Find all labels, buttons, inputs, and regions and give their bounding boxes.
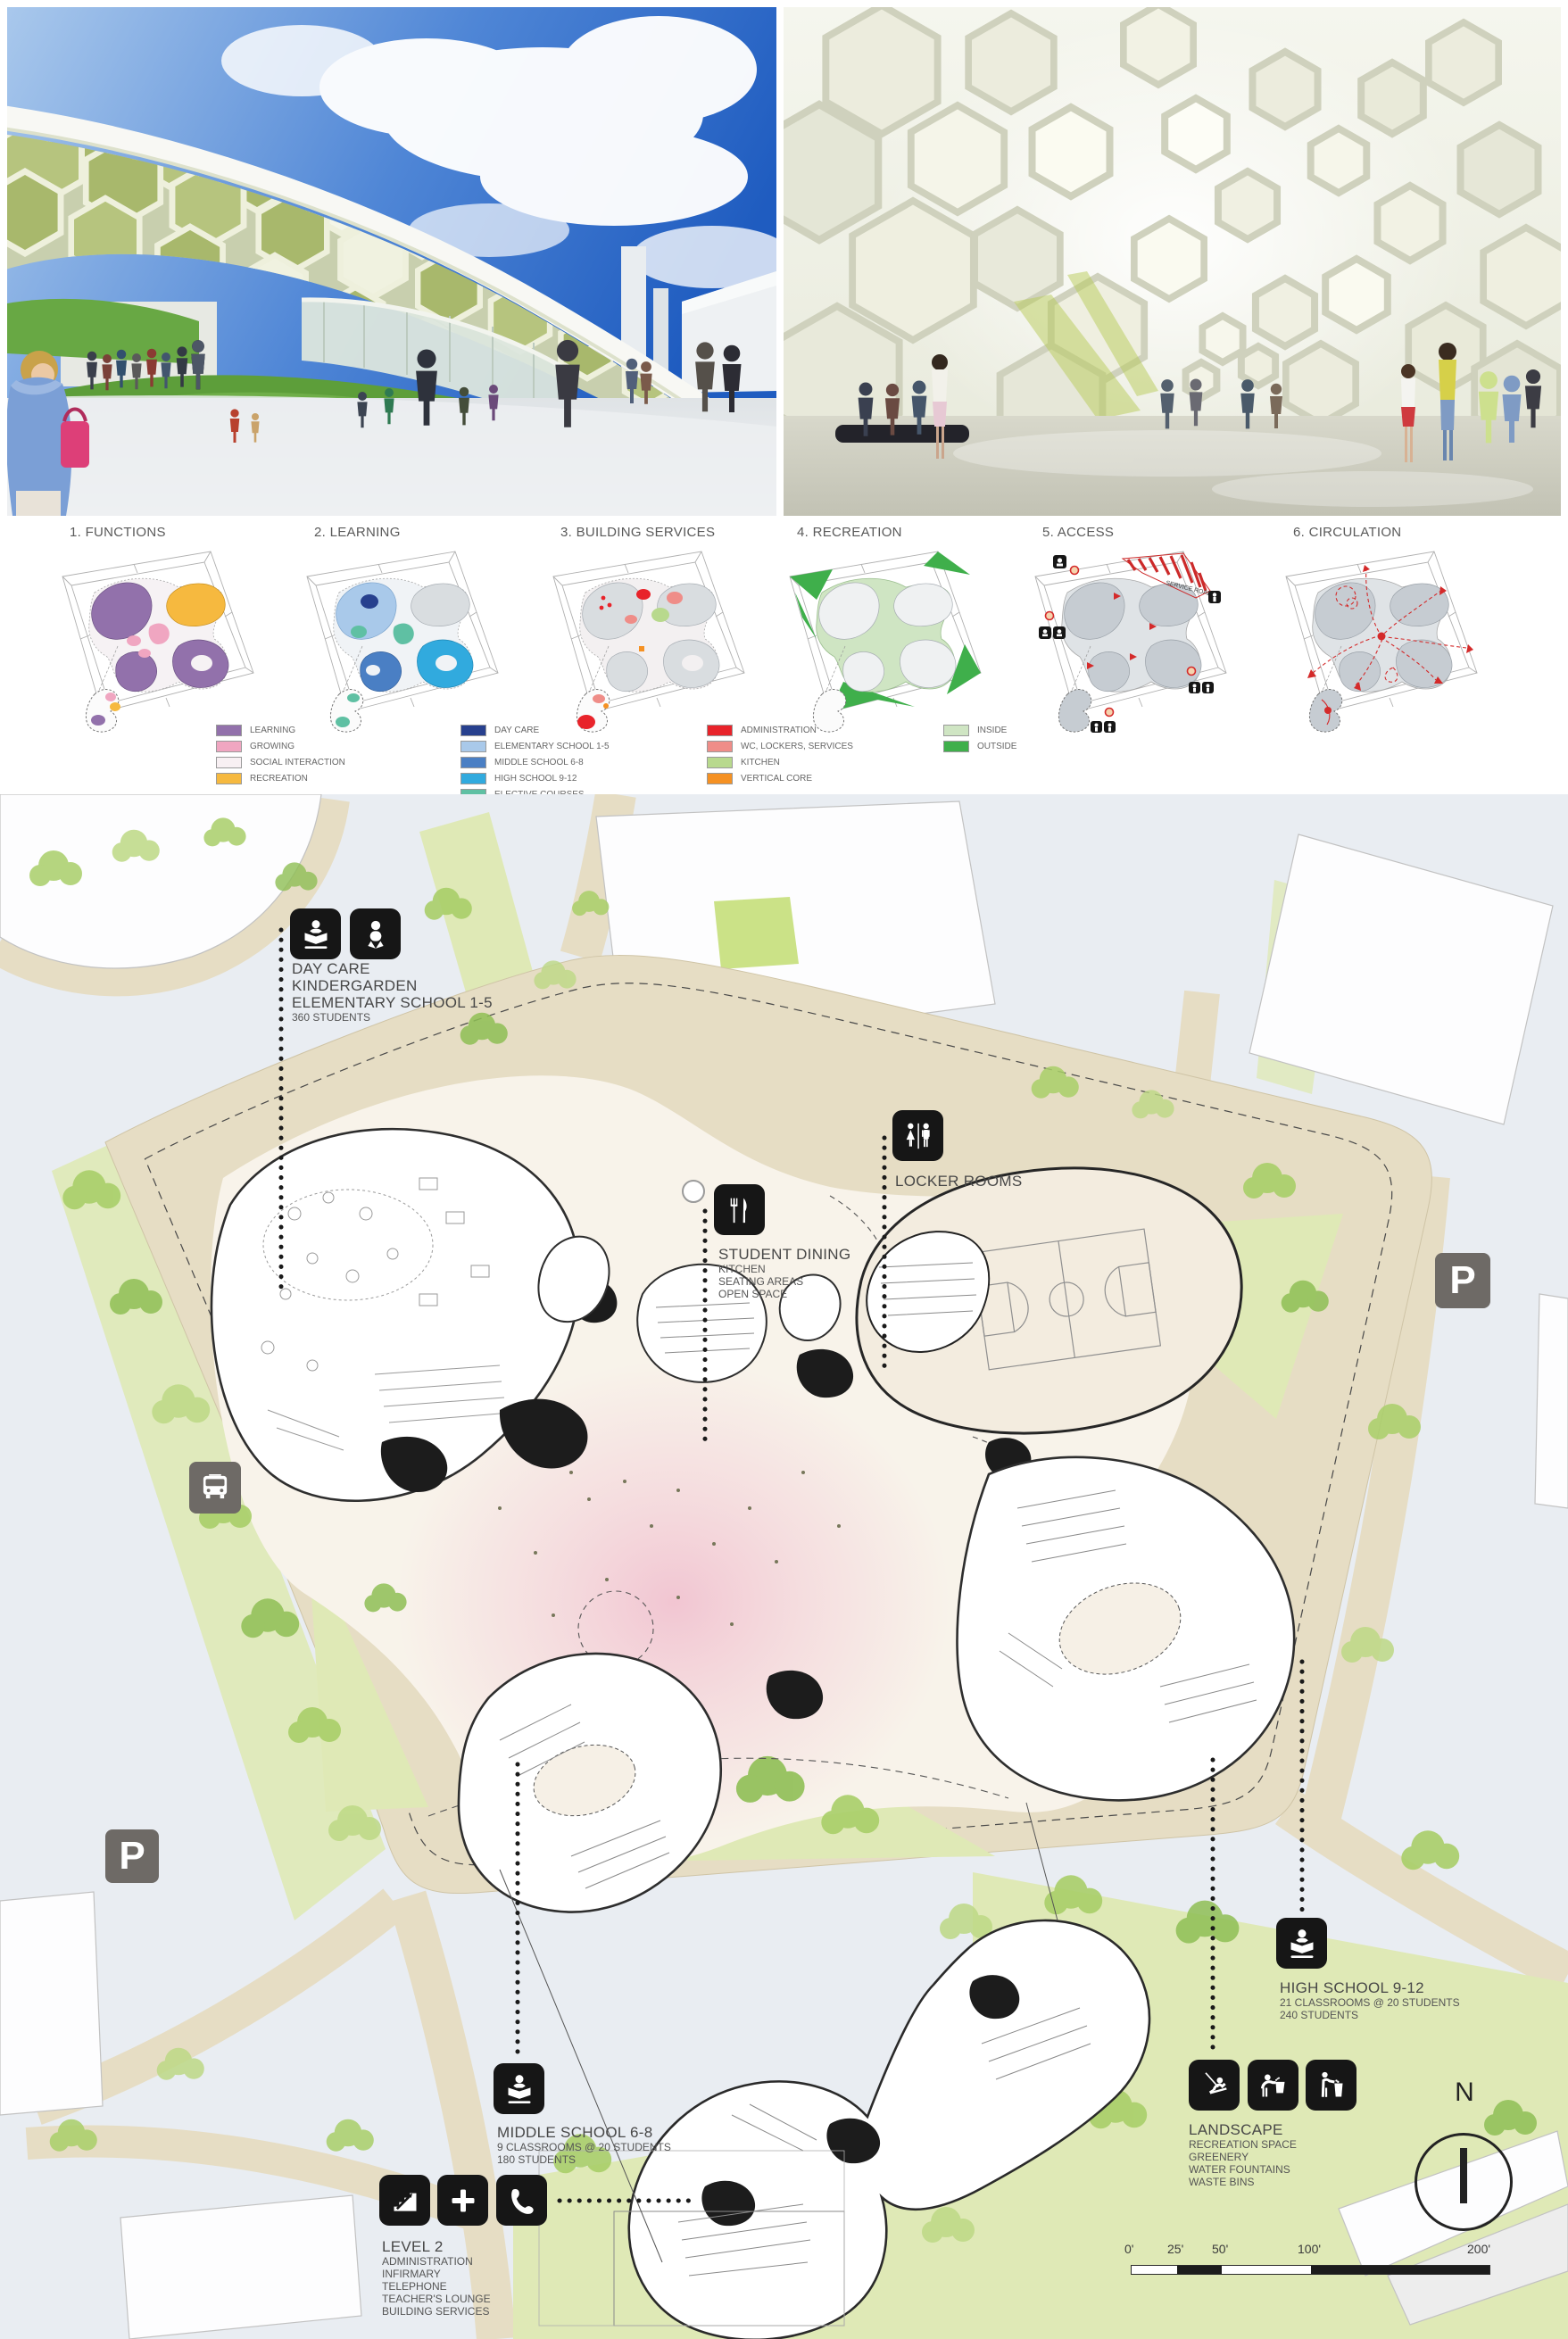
diagram-title: 5. ACCESS bbox=[1042, 525, 1114, 540]
dining-icon bbox=[714, 1184, 765, 1235]
diagram-title: 4. RECREATION bbox=[797, 525, 902, 540]
presentation-board: 1. FUNCTIONS LEARNING GROWIN bbox=[0, 0, 1568, 2339]
day-care-label: DAY CARE KINDERGARDEN ELEMENTARY SCHOOL … bbox=[292, 960, 493, 1024]
scale-bar bbox=[1131, 2265, 1490, 2275]
stairs-icon bbox=[379, 2175, 430, 2226]
legend-swatch bbox=[460, 725, 486, 736]
diagram-circulation-drawing bbox=[1259, 541, 1505, 746]
diagram-learning-drawing bbox=[280, 541, 526, 746]
diagram-building-services-drawing bbox=[527, 541, 772, 746]
diagram-access-drawing: SERVICE ROAD bbox=[1008, 541, 1254, 746]
swing-icon bbox=[1189, 2060, 1240, 2111]
legend-swatch bbox=[707, 757, 733, 768]
infirmary-icon bbox=[437, 2175, 488, 2226]
analysis-diagrams-strip: 1. FUNCTIONS LEARNING GROWIN bbox=[0, 518, 1568, 794]
legend-swatch bbox=[943, 725, 969, 736]
diagram-learning: 2. LEARNING DAY CARE ELEMENT bbox=[280, 518, 521, 794]
locker-rooms-label: LOCKER ROOMS bbox=[895, 1173, 1022, 1190]
diagram-title: 1. FUNCTIONS bbox=[70, 525, 166, 540]
site-plan: DAY CARE KINDERGARDEN ELEMENTARY SCHOOL … bbox=[0, 794, 1568, 2339]
interior-rendering-photo bbox=[784, 7, 1561, 516]
diagram-functions-drawing bbox=[36, 541, 281, 746]
student-dining-label: STUDENT DINING KITCHEN SEATING AREAS OPE… bbox=[718, 1246, 850, 1300]
high-school-label: HIGH SCHOOL 9-12 21 CLASSROOMS @ 20 STUD… bbox=[1280, 1979, 1460, 2021]
baby-icon bbox=[350, 908, 401, 959]
courtyard-green bbox=[714, 897, 799, 969]
legend-swatch bbox=[943, 741, 969, 752]
legend-swatch bbox=[707, 725, 733, 736]
middle-school-label: MIDDLE SCHOOL 6-8 9 CLASSROOMS @ 20 STUD… bbox=[497, 2124, 671, 2166]
legend-swatch bbox=[707, 773, 733, 784]
diagram-title: 2. LEARNING bbox=[314, 525, 401, 540]
scale-tick: 0' bbox=[1124, 2242, 1133, 2256]
waste-icon bbox=[1306, 2060, 1356, 2111]
diagram-title: 6. CIRCULATION bbox=[1293, 525, 1401, 540]
telephone-icon bbox=[496, 2175, 547, 2226]
legend-swatch bbox=[460, 773, 486, 784]
legend-swatch bbox=[216, 757, 242, 768]
diagram-access: 5. ACCESS SERVICE ROAD bbox=[1008, 518, 1249, 794]
landscape-label: LANDSCAPE RECREATION SPACE GREENERY WATE… bbox=[1189, 2121, 1297, 2188]
legend-swatch bbox=[216, 725, 242, 736]
bench bbox=[835, 425, 969, 443]
legend-swatch bbox=[460, 741, 486, 752]
wc-icon bbox=[892, 1110, 943, 1161]
legend-swatch bbox=[216, 773, 242, 784]
north-label: N bbox=[1442, 2078, 1487, 2108]
dining-node-circle bbox=[683, 1181, 704, 1202]
parking-icon-east: P bbox=[1435, 1253, 1490, 1308]
scale-tick: 100' bbox=[1298, 2242, 1321, 2256]
reader-icon bbox=[290, 908, 341, 959]
bus-icon bbox=[189, 1462, 241, 1514]
scale-tick: 200' bbox=[1467, 2242, 1490, 2256]
north-arrow bbox=[1415, 2133, 1513, 2231]
scale-tick: 25' bbox=[1167, 2242, 1183, 2256]
legend-swatch bbox=[216, 741, 242, 752]
level-2-label: LEVEL 2 ADMINISTRATION INFIRMARY TELEPHO… bbox=[382, 2238, 491, 2318]
diagram-circulation: 6. CIRCULATION bbox=[1259, 518, 1554, 794]
diagram-recreation-drawing bbox=[763, 541, 1008, 746]
exterior-rendering-photo bbox=[7, 7, 776, 516]
legend-swatch bbox=[460, 757, 486, 768]
scale-tick: 50' bbox=[1212, 2242, 1228, 2256]
diagram-title: 3. BUILDING SERVICES bbox=[560, 525, 715, 540]
diagram-recreation: 4. RECREATION INSIDE bbox=[763, 518, 1004, 794]
fountain-icon bbox=[1248, 2060, 1298, 2111]
reader-icon bbox=[1276, 1918, 1327, 1969]
parking-icon-west: P bbox=[105, 1829, 159, 1883]
legend-recreation: INSIDE OUTSIDE bbox=[943, 725, 1016, 757]
diagram-functions: 1. FUNCTIONS LEARNING GROWIN bbox=[36, 518, 277, 794]
diagram-building-services: 3. BUILDING SERVICES bbox=[527, 518, 767, 794]
reader-icon bbox=[494, 2063, 544, 2114]
legend-swatch bbox=[707, 741, 733, 752]
